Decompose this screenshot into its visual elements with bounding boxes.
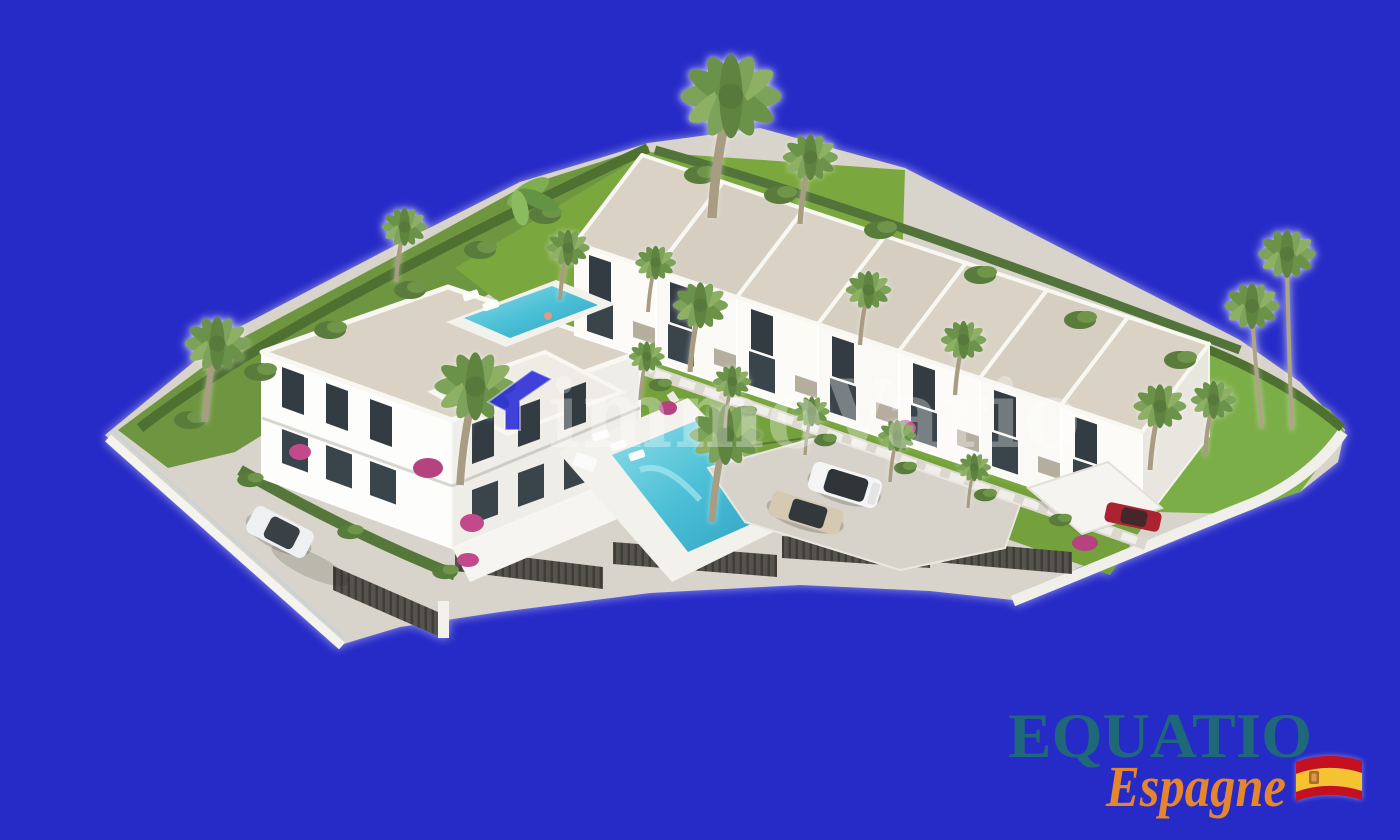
spain-flag-icon (1296, 756, 1362, 801)
swimmer (544, 312, 552, 320)
watermark: immoVario (488, 360, 1082, 470)
agency-logo-subtitle: Espagne (1105, 754, 1286, 819)
fence-gate-post (438, 601, 449, 638)
aerial-render: immoVario EQUATIO Espagne (0, 0, 1400, 840)
render-canvas: immoVario EQUATIO Espagne (0, 0, 1400, 840)
watermark-text: immoVario (548, 360, 1082, 470)
